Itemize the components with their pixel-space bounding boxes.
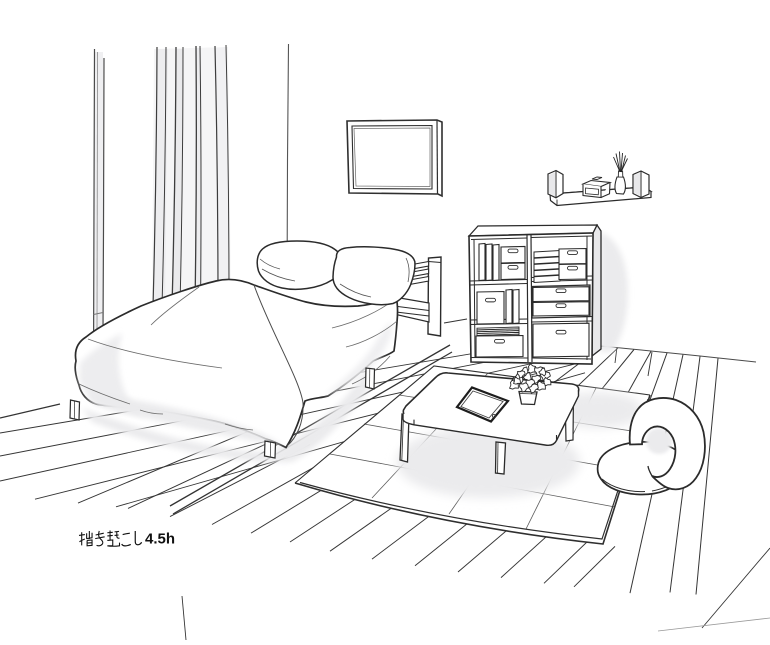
svg-text:4.5h: 4.5h [145, 531, 175, 548]
